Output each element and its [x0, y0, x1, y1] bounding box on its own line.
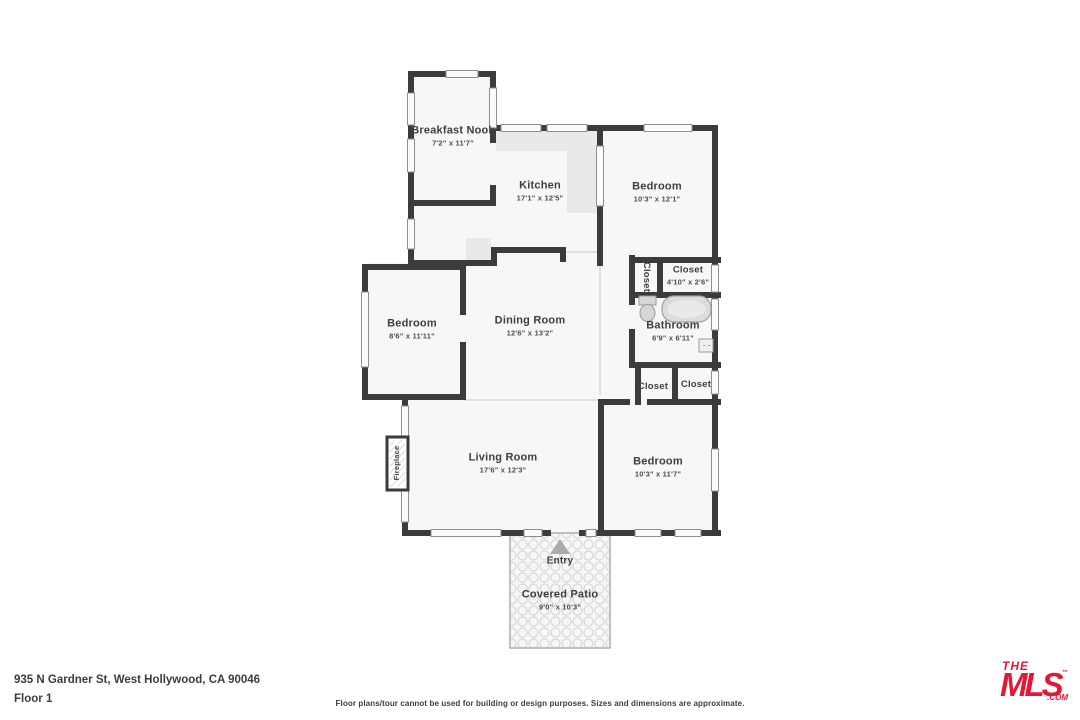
floor-plan-drawing [0, 0, 1080, 720]
themls-logo-tm: ™ [1062, 670, 1068, 676]
property-address: 935 N Gardner St, West Hollywood, CA 900… [14, 674, 260, 686]
floor-plan-page: Breakfast Nook 7'2" x 11'7" Kitchen 17'1… [0, 0, 1080, 720]
bathroom-vent-icon [699, 339, 713, 352]
bathtub-icon [662, 296, 711, 322]
themls-logo: THE MLS ™ .COM [1000, 660, 1066, 708]
toilet-icon [639, 296, 656, 322]
themls-logo-com: .COM [1047, 693, 1068, 702]
disclaimer-text: Floor plans/tour cannot be used for buil… [0, 699, 1080, 708]
fireplace-icon [387, 437, 408, 490]
